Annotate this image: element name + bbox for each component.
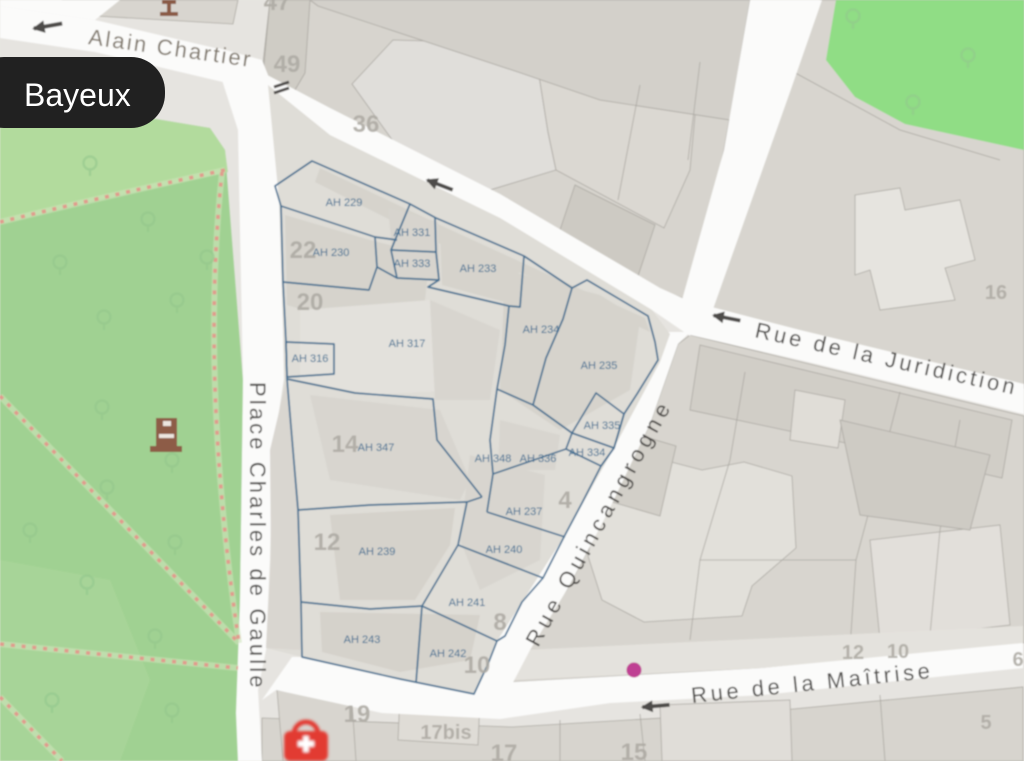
svg-text:AH 316: AH 316 xyxy=(292,353,329,365)
svg-text:19: 19 xyxy=(344,701,371,728)
svg-text:Bayeux: Bayeux xyxy=(24,77,131,113)
svg-text:Place Charles de Gaulle: Place Charles de Gaulle xyxy=(245,382,270,691)
svg-text:49: 49 xyxy=(274,51,301,78)
svg-text:AH 235: AH 235 xyxy=(581,360,618,372)
svg-text:10: 10 xyxy=(464,652,491,679)
svg-text:6: 6 xyxy=(1012,649,1023,671)
svg-text:12: 12 xyxy=(314,529,341,556)
svg-text:20: 20 xyxy=(297,289,324,316)
svg-text:22: 22 xyxy=(290,237,317,264)
svg-text:AH 233: AH 233 xyxy=(460,263,497,275)
svg-text:AH 336: AH 336 xyxy=(520,453,557,465)
svg-text:AH 241: AH 241 xyxy=(449,597,486,609)
svg-text:AH 331: AH 331 xyxy=(394,227,431,239)
svg-text:AH 333: AH 333 xyxy=(394,258,431,270)
svg-text:AH 234: AH 234 xyxy=(523,324,560,336)
svg-text:17: 17 xyxy=(491,740,518,761)
svg-text:8: 8 xyxy=(493,609,506,636)
svg-text:47: 47 xyxy=(264,0,291,16)
svg-text:17bis: 17bis xyxy=(420,722,471,744)
svg-text:4: 4 xyxy=(558,487,572,514)
svg-text:AH 334: AH 334 xyxy=(569,447,606,459)
svg-text:14: 14 xyxy=(332,431,359,458)
svg-text:AH 317: AH 317 xyxy=(389,338,426,350)
svg-text:AH 242: AH 242 xyxy=(430,648,467,660)
svg-text:AH 230: AH 230 xyxy=(313,247,350,259)
svg-text:AH 237: AH 237 xyxy=(506,506,543,518)
svg-text:AH 347: AH 347 xyxy=(358,442,395,454)
svg-text:5: 5 xyxy=(980,712,991,734)
svg-text:36: 36 xyxy=(353,111,380,138)
svg-text:AH 229: AH 229 xyxy=(326,197,363,209)
svg-text:12: 12 xyxy=(842,642,864,664)
svg-text:15: 15 xyxy=(621,739,648,761)
svg-text:AH 239: AH 239 xyxy=(359,546,396,558)
svg-text:16: 16 xyxy=(985,282,1007,304)
svg-text:AH 240: AH 240 xyxy=(486,544,523,556)
svg-text:AH 335: AH 335 xyxy=(584,420,621,432)
svg-text:AH 348: AH 348 xyxy=(475,453,512,465)
svg-text:AH 243: AH 243 xyxy=(344,634,381,646)
